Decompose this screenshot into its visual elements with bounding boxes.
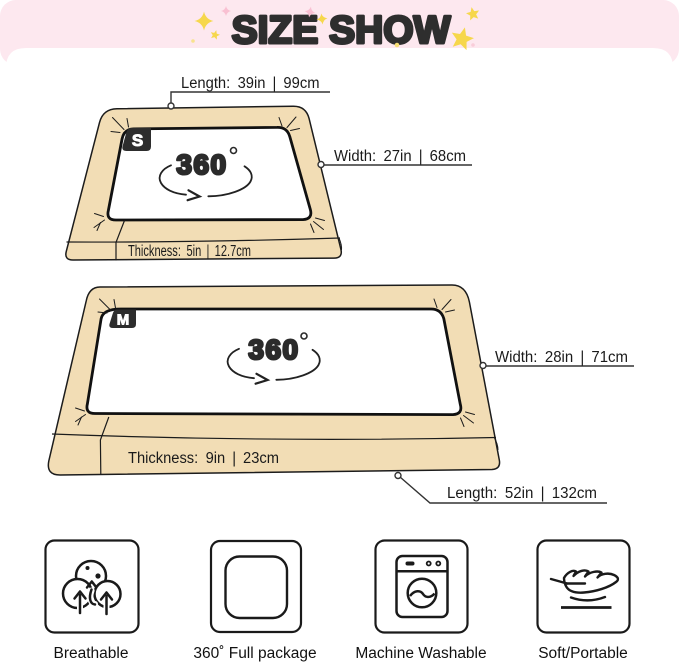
svg-text:Width: 28in | 71cm: Width: 28in | 71cm (495, 349, 628, 366)
svg-text:Length: 52in | 132cm: Length: 52in | 132cm (447, 485, 597, 502)
svg-text:360: 360 (176, 149, 227, 180)
svg-text:M: M (117, 312, 130, 329)
svg-text:360: 360 (248, 334, 299, 365)
svg-text:Length: 39in | 99cm: Length: 39in | 99cm (181, 75, 320, 92)
svg-text:360˚ Full package: 360˚ Full package (193, 645, 316, 662)
svg-text:Thickness: 9in | 23cm: Thickness: 9in | 23cm (128, 450, 279, 467)
svg-text:Width: 27in | 68cm: Width: 27in | 68cm (334, 148, 466, 165)
svg-text:S: S (132, 131, 143, 150)
svg-text:Breathable: Breathable (54, 645, 129, 662)
svg-text:Soft/Portable: Soft/Portable (538, 645, 628, 662)
svg-text:Thickness: 5in | 12.7cm: Thickness: 5in | 12.7cm (128, 243, 251, 260)
svg-text:Machine Washable: Machine Washable (355, 645, 486, 662)
svg-text:SIZE SHOW: SIZE SHOW (232, 9, 451, 52)
